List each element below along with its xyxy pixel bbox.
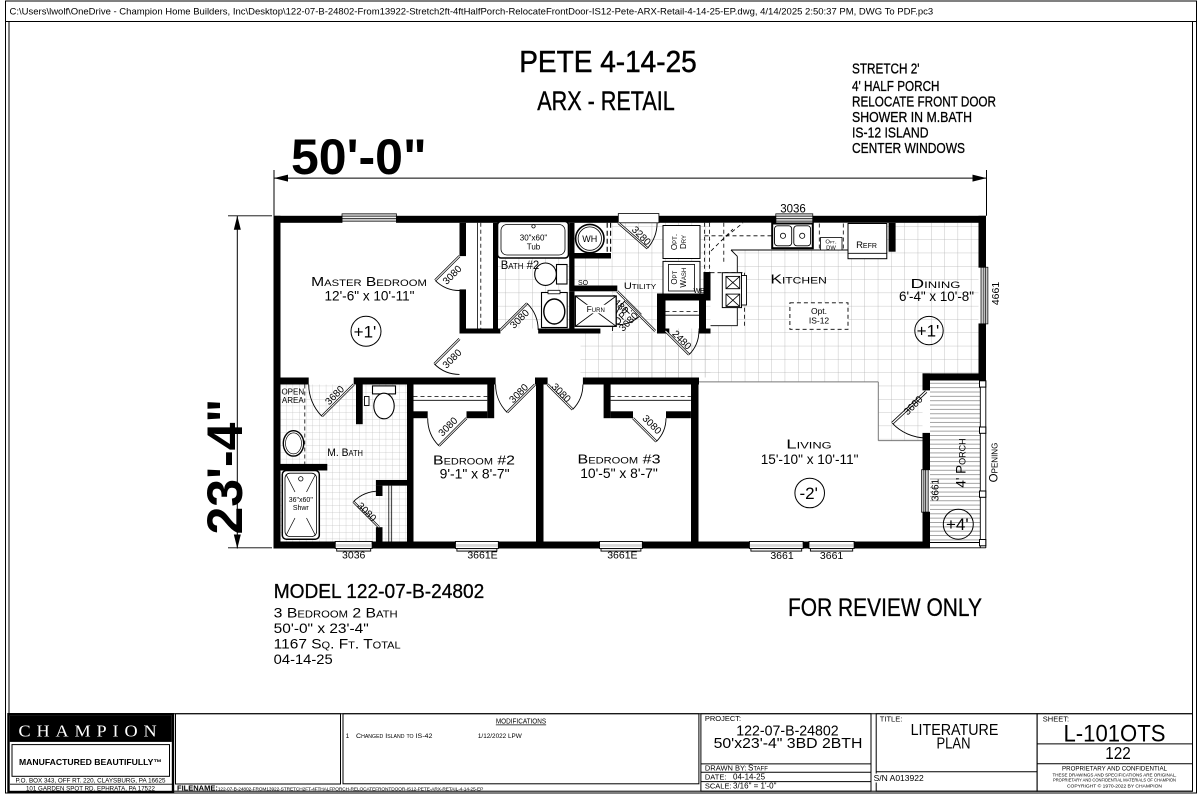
svg-text:PROPRIETARY AND CONFIDENTIAL M: PROPRIETARY AND CONFIDENTIAL MATERIALS O… — [1053, 777, 1176, 782]
svg-text:Furn: Furn — [587, 304, 605, 314]
svg-text:15'-10" x 10'-11": 15'-10" x 10'-11" — [761, 451, 859, 467]
svg-text:30"x60": 30"x60" — [520, 234, 548, 243]
svg-text:DW: DW — [826, 246, 836, 252]
svg-text:Living: Living — [786, 437, 831, 452]
svg-text:04-14-25: 04-14-25 — [274, 651, 333, 667]
svg-text:-2': -2' — [800, 484, 818, 503]
svg-text:Bath #2: Bath #2 — [501, 260, 540, 272]
svg-text:Wash: Wash — [679, 268, 688, 288]
svg-text:12'-6" x 10'-11": 12'-6" x 10'-11" — [325, 288, 415, 304]
svg-text:IS-12: IS-12 — [809, 316, 830, 326]
svg-text:IS-12 ISLAND: IS-12 ISLAND — [852, 125, 929, 142]
svg-text:3 Bedroom 2 Bath: 3 Bedroom 2 Bath — [274, 605, 398, 621]
svg-text:50'-0": 50'-0" — [291, 129, 427, 185]
svg-text:+1': +1' — [354, 322, 377, 341]
svg-text:FOR REVIEW ONLY: FOR REVIEW ONLY — [788, 594, 982, 622]
svg-text:Opt.: Opt. — [670, 234, 679, 250]
svg-text:CENTER WINDOWS: CENTER WINDOWS — [852, 140, 965, 157]
svg-text:3036: 3036 — [342, 550, 366, 562]
svg-text:Kitchen: Kitchen — [770, 271, 827, 286]
svg-text:MODEL 122-07-B-24802: MODEL 122-07-B-24802 — [274, 581, 485, 603]
svg-text:1: 1 — [346, 733, 350, 740]
svg-text:DATE:: DATE: — [705, 772, 727, 781]
svg-text:MANUFACTURED BEAUTIFULLY™: MANUFACTURED BEAUTIFULLY™ — [19, 757, 162, 767]
svg-text:STRETCH 2': STRETCH 2' — [852, 61, 920, 78]
svg-text:23'-4": 23'-4" — [197, 399, 253, 535]
svg-text:MODIFICATIONS: MODIFICATIONS — [496, 717, 546, 726]
svg-text:3/16" = 1'-0": 3/16" = 1'-0" — [733, 782, 777, 791]
svg-text:PLAN: PLAN — [937, 736, 971, 753]
svg-text:1167 Sq. Ft. Total: 1167 Sq. Ft. Total — [274, 636, 401, 652]
svg-text:SCALE:: SCALE: — [705, 782, 732, 791]
svg-text:DRAWN BY:: DRAWN BY: — [705, 763, 747, 772]
svg-text:Changed Island to IS-42: Changed Island to IS-42 — [356, 733, 433, 740]
svg-text:122: 122 — [1105, 743, 1131, 763]
svg-text:WB: WB — [694, 288, 706, 295]
svg-text:3661: 3661 — [820, 550, 844, 562]
svg-text:1/12/2022 LPW: 1/12/2022 LPW — [478, 733, 522, 740]
svg-text:RELOCATE FRONT DOOR: RELOCATE FRONT DOOR — [852, 94, 996, 111]
svg-text:Opt: Opt — [670, 270, 679, 284]
svg-text:9'-1" x 8'-7": 9'-1" x 8'-7" — [440, 465, 510, 481]
svg-text:4' HALF PORCH: 4' HALF PORCH — [852, 78, 940, 95]
svg-text:AREA: AREA — [282, 396, 304, 405]
svg-text:10'-5" x 8'-7": 10'-5" x 8'-7" — [580, 465, 658, 481]
svg-text:Opening: Opening — [989, 443, 1001, 483]
svg-text:6'-4" x 10'-8": 6'-4" x 10'-8" — [899, 288, 974, 304]
svg-text:Utility: Utility — [624, 281, 657, 292]
svg-text:04-14-25: 04-14-25 — [733, 772, 766, 781]
svg-text:4661: 4661 — [990, 282, 1002, 306]
svg-text:Refr: Refr — [856, 240, 877, 251]
svg-text:P.O. BOX 343, OFF RT. 220, CLA: P.O. BOX 343, OFF RT. 220, CLAYSBURG, PA… — [16, 777, 166, 784]
svg-text:3661E: 3661E — [467, 550, 497, 562]
svg-text:SHOWER IN M.BATH: SHOWER IN M.BATH — [852, 109, 972, 126]
svg-text:S/N A013922: S/N A013922 — [874, 773, 924, 783]
svg-text:4' Porch: 4' Porch — [954, 438, 969, 487]
svg-text:50'-0" x 23'-4": 50'-0" x 23'-4" — [274, 620, 369, 636]
svg-text:3661E: 3661E — [607, 550, 637, 562]
svg-text:M. Bath: M. Bath — [327, 447, 363, 459]
svg-text:+1': +1' — [917, 322, 940, 341]
svg-text:C:\Users\lwolf\OneDrive - Cham: C:\Users\lwolf\OneDrive - Champion Home … — [10, 7, 934, 18]
svg-text:ARX - RETAIL: ARX - RETAIL — [537, 86, 675, 116]
svg-text:Shwr: Shwr — [293, 505, 310, 512]
svg-text:+4': +4' — [946, 515, 969, 534]
svg-text:WH: WH — [582, 234, 597, 244]
svg-text:3661: 3661 — [931, 478, 942, 501]
svg-text:3036: 3036 — [780, 204, 806, 216]
svg-text:SO: SO — [578, 280, 589, 287]
svg-text:Tub: Tub — [527, 243, 541, 252]
svg-text:50'x23'-4" 3BD 2BTH: 50'x23'-4" 3BD 2BTH — [714, 735, 863, 752]
svg-text:Opt.: Opt. — [811, 306, 827, 316]
svg-text:COPYRIGHT © 1970-2022 BY CHAMP: COPYRIGHT © 1970-2022 BY CHAMPION — [1067, 782, 1162, 788]
svg-text:CHAMPION: CHAMPION — [19, 722, 163, 741]
svg-text:TITLE:: TITLE: — [880, 715, 903, 724]
svg-text:3661: 3661 — [770, 550, 794, 562]
svg-text:36"x60": 36"x60" — [289, 497, 314, 504]
svg-text:PETE 4-14-25: PETE 4-14-25 — [519, 44, 697, 79]
svg-text:101 GARDEN SPOT RD. EPHRATA,: 101 GARDEN SPOT RD. EPHRATA, PA 17522 — [26, 786, 155, 793]
svg-text:Staff: Staff — [748, 763, 768, 772]
svg-text:Dry: Dry — [679, 235, 688, 249]
